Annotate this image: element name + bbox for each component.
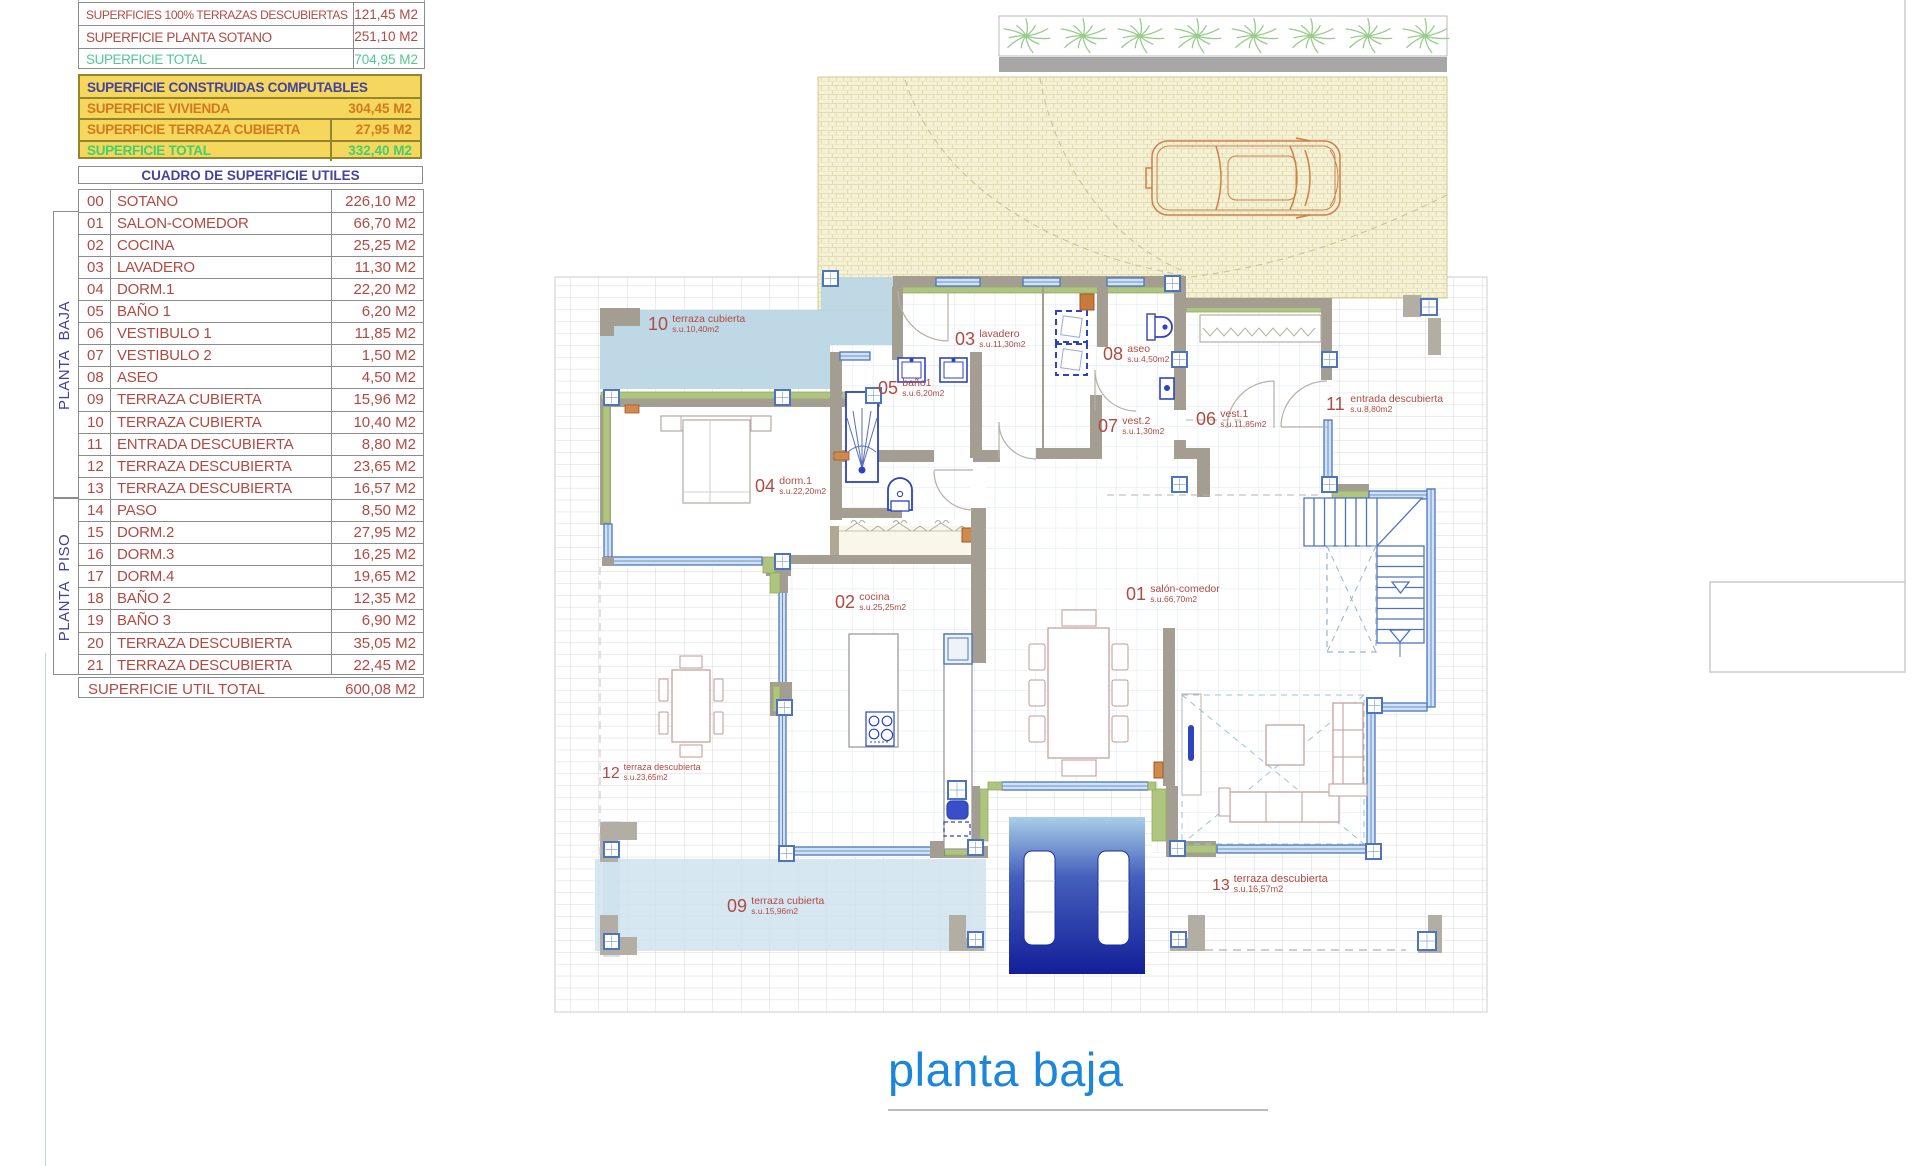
svg-text:s.u.16,57m2: s.u.16,57m2 (1234, 884, 1284, 894)
svg-text:s.u.1,30m2: s.u.1,30m2 (1122, 426, 1164, 436)
svg-text:09: 09 (727, 896, 747, 916)
svg-text:terraza descubierta: terraza descubierta (624, 762, 701, 772)
svg-text:s.u.25,25m2: s.u.25,25m2 (859, 602, 906, 612)
svg-text:s.u.66,70m2: s.u.66,70m2 (1150, 594, 1197, 604)
svg-text:06: 06 (1196, 409, 1216, 429)
svg-text:s.u.6,20m2: s.u.6,20m2 (902, 388, 944, 398)
svg-text:s.u.11,85m2: s.u.11,85m2 (1220, 419, 1266, 429)
svg-text:10: 10 (648, 314, 668, 334)
svg-text:planta baja: planta baja (888, 1043, 1124, 1096)
svg-text:11: 11 (1326, 394, 1345, 414)
svg-text:s.u.4,50m2: s.u.4,50m2 (1127, 354, 1169, 364)
svg-text:s.u.10,40m2: s.u.10,40m2 (672, 324, 719, 334)
svg-text:s.u.23,65m2: s.u.23,65m2 (624, 773, 669, 782)
svg-text:07: 07 (1098, 416, 1118, 436)
svg-text:08: 08 (1103, 344, 1123, 364)
svg-text:02: 02 (835, 592, 855, 612)
svg-text:05: 05 (878, 378, 898, 398)
svg-text:12: 12 (602, 765, 620, 782)
svg-text:13: 13 (1212, 877, 1230, 894)
svg-text:s.u.11,30m2: s.u.11,30m2 (979, 339, 1025, 349)
svg-text:04: 04 (755, 476, 775, 496)
svg-text:03: 03 (955, 329, 975, 349)
svg-text:s.u.15,96m2: s.u.15,96m2 (751, 906, 798, 916)
svg-text:s.u.22,20m2: s.u.22,20m2 (779, 486, 826, 496)
svg-text:s.u.8,80m2: s.u.8,80m2 (1350, 404, 1392, 414)
svg-text:01: 01 (1126, 584, 1146, 604)
